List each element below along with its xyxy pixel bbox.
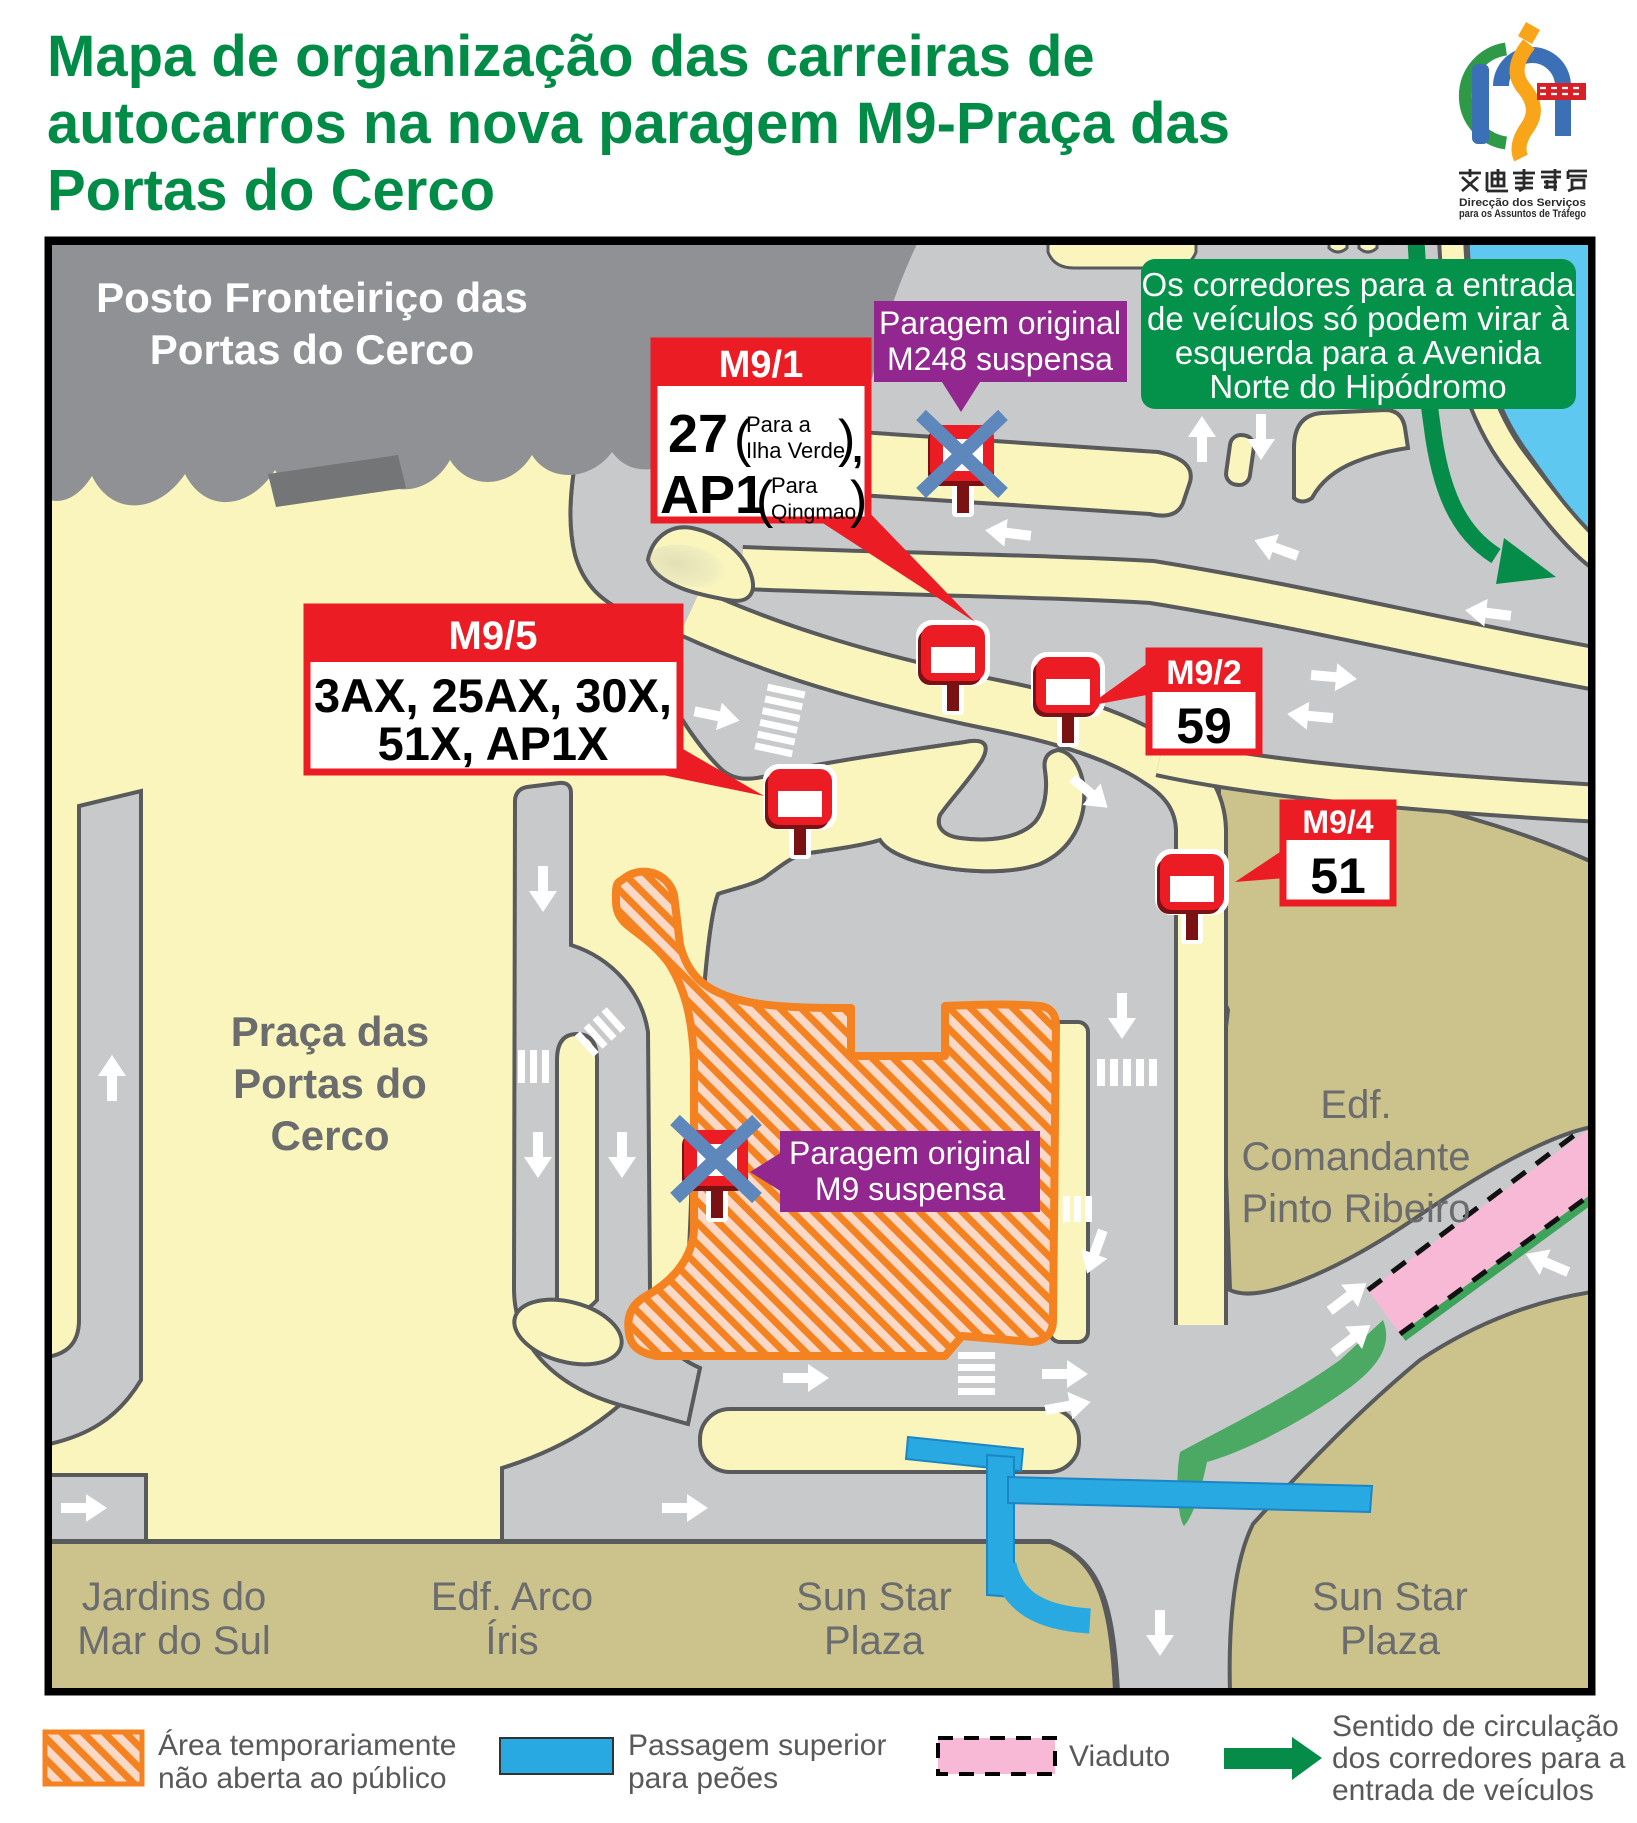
svg-text:M248 suspensa: M248 suspensa <box>887 341 1113 377</box>
svg-text:AP1: AP1 <box>660 465 765 525</box>
svg-text:Posto Fronteiriço das: Posto Fronteiriço das <box>96 274 528 321</box>
svg-text:Área temporariamente: Área temporariamente <box>158 1729 456 1762</box>
svg-text:Qingmao: Qingmao <box>771 501 856 524</box>
svg-text:Viaduto: Viaduto <box>1069 1740 1170 1773</box>
svg-text:Pinto Ribeiro: Pinto Ribeiro <box>1241 1187 1470 1231</box>
svg-text:M9/1: M9/1 <box>719 344 803 386</box>
svg-text:Passagem superior: Passagem superior <box>628 1729 886 1762</box>
svg-text:Portas do Cerco: Portas do Cerco <box>150 326 474 373</box>
svg-text:59: 59 <box>1176 698 1232 754</box>
svg-text:,: , <box>852 427 863 471</box>
svg-text:): ) <box>850 471 867 529</box>
svg-text:Mar do Sul: Mar do Sul <box>77 1619 270 1663</box>
svg-text:Praça das: Praça das <box>231 1008 429 1055</box>
svg-text:Edf.: Edf. <box>1320 1083 1391 1127</box>
svg-text:Cerco: Cerco <box>270 1112 389 1159</box>
svg-text:M9/4: M9/4 <box>1302 804 1373 840</box>
svg-text:Para a: Para a <box>746 412 812 437</box>
svg-text:27: 27 <box>668 404 728 464</box>
svg-text:M9/5: M9/5 <box>449 614 538 658</box>
svg-text:Para: Para <box>771 473 818 498</box>
svg-text:Jardins do: Jardins do <box>82 1575 267 1619</box>
svg-text:autocarros na nova paragem M9-: autocarros na nova paragem M9-Praça das <box>47 91 1230 156</box>
svg-text:Paragem original: Paragem original <box>789 1135 1031 1171</box>
svg-text:Sentido de circulação: Sentido de circulação <box>1332 1710 1619 1743</box>
svg-text:51X, AP1X: 51X, AP1X <box>378 717 609 770</box>
svg-text:Sun Star: Sun Star <box>1312 1575 1468 1619</box>
svg-text:Plaza: Plaza <box>824 1619 925 1663</box>
svg-text:não aberta ao público: não aberta ao público <box>158 1762 447 1795</box>
svg-text:Ilha Verde: Ilha Verde <box>746 438 845 463</box>
svg-text:M9 suspensa: M9 suspensa <box>815 1171 1006 1207</box>
svg-text:Portas do: Portas do <box>233 1060 427 1107</box>
svg-text:M9/2: M9/2 <box>1166 654 1242 692</box>
svg-text:Portas do Cerco: Portas do Cerco <box>47 158 495 223</box>
svg-text:esquerda para a Avenida: esquerda para a Avenida <box>1175 334 1542 371</box>
svg-text:Plaza: Plaza <box>1340 1619 1441 1663</box>
svg-text:para peões: para peões <box>628 1762 778 1795</box>
svg-text:3AX, 25AX, 30X,: 3AX, 25AX, 30X, <box>314 669 672 722</box>
svg-text:Edf. Arco: Edf. Arco <box>431 1575 593 1619</box>
svg-text:Comandante: Comandante <box>1241 1135 1470 1179</box>
svg-text:51: 51 <box>1310 848 1366 904</box>
svg-text:Mapa de organização das carrei: Mapa de organização das carreiras de <box>47 24 1095 89</box>
svg-text:Sun Star: Sun Star <box>796 1575 952 1619</box>
svg-text:dos corredores para a: dos corredores para a <box>1332 1742 1626 1775</box>
svg-text:para os Assuntos de Tráfego: para os Assuntos de Tráfego <box>1459 208 1586 220</box>
svg-text:Os corredores para a entrada: Os corredores para a entrada <box>1142 266 1576 303</box>
svg-text:de veículos só podem virar à: de veículos só podem virar à <box>1147 300 1570 337</box>
svg-text:entrada de veículos: entrada de veículos <box>1332 1774 1594 1807</box>
svg-text:Íris: Íris <box>485 1618 538 1663</box>
svg-text:Norte do Hipódromo: Norte do Hipódromo <box>1209 368 1506 405</box>
svg-text:Paragem original: Paragem original <box>879 305 1121 341</box>
